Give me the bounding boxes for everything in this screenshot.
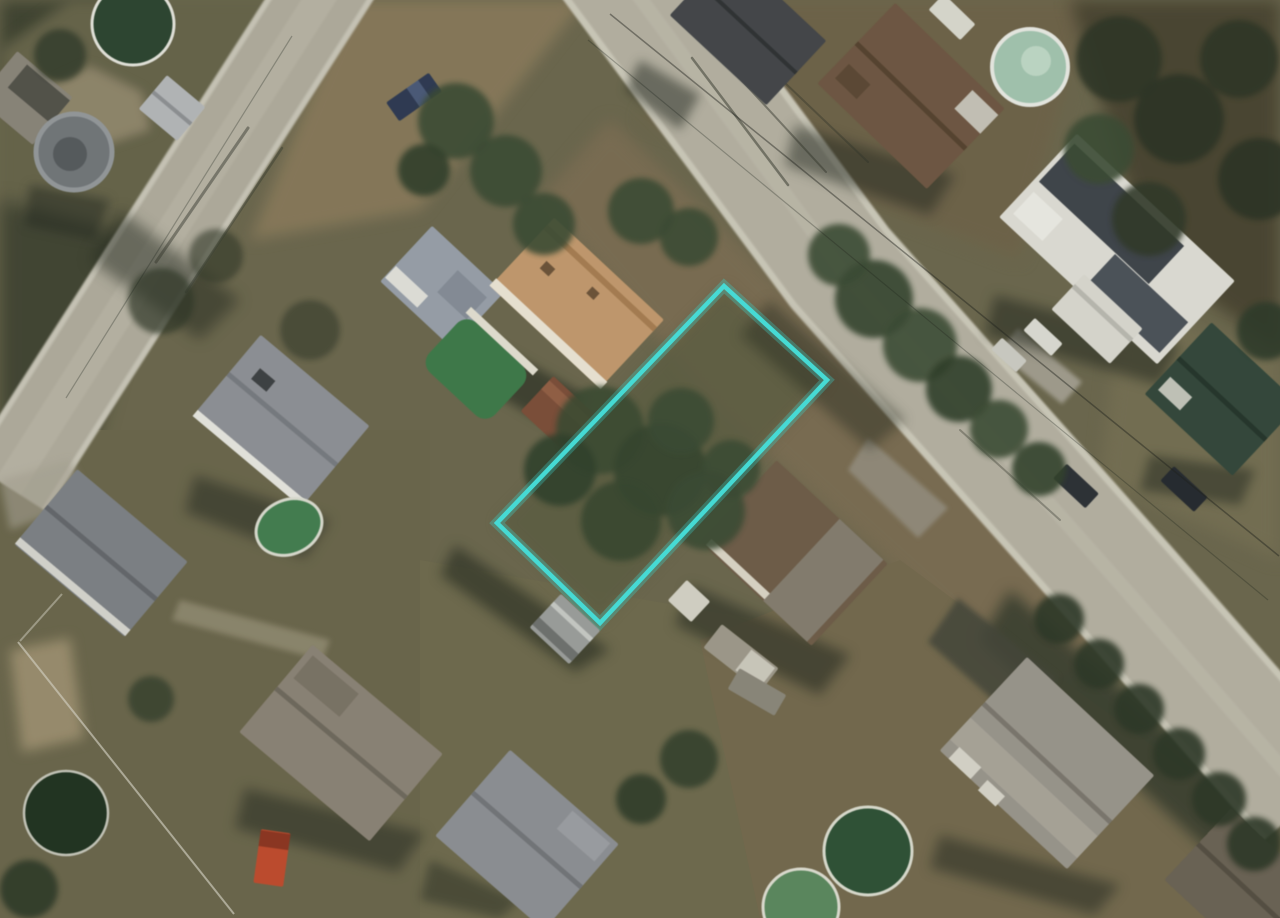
aerial-photo xyxy=(0,0,1280,918)
aerial-photo-view xyxy=(0,0,1280,918)
photo-tone-overlay xyxy=(0,0,1280,918)
